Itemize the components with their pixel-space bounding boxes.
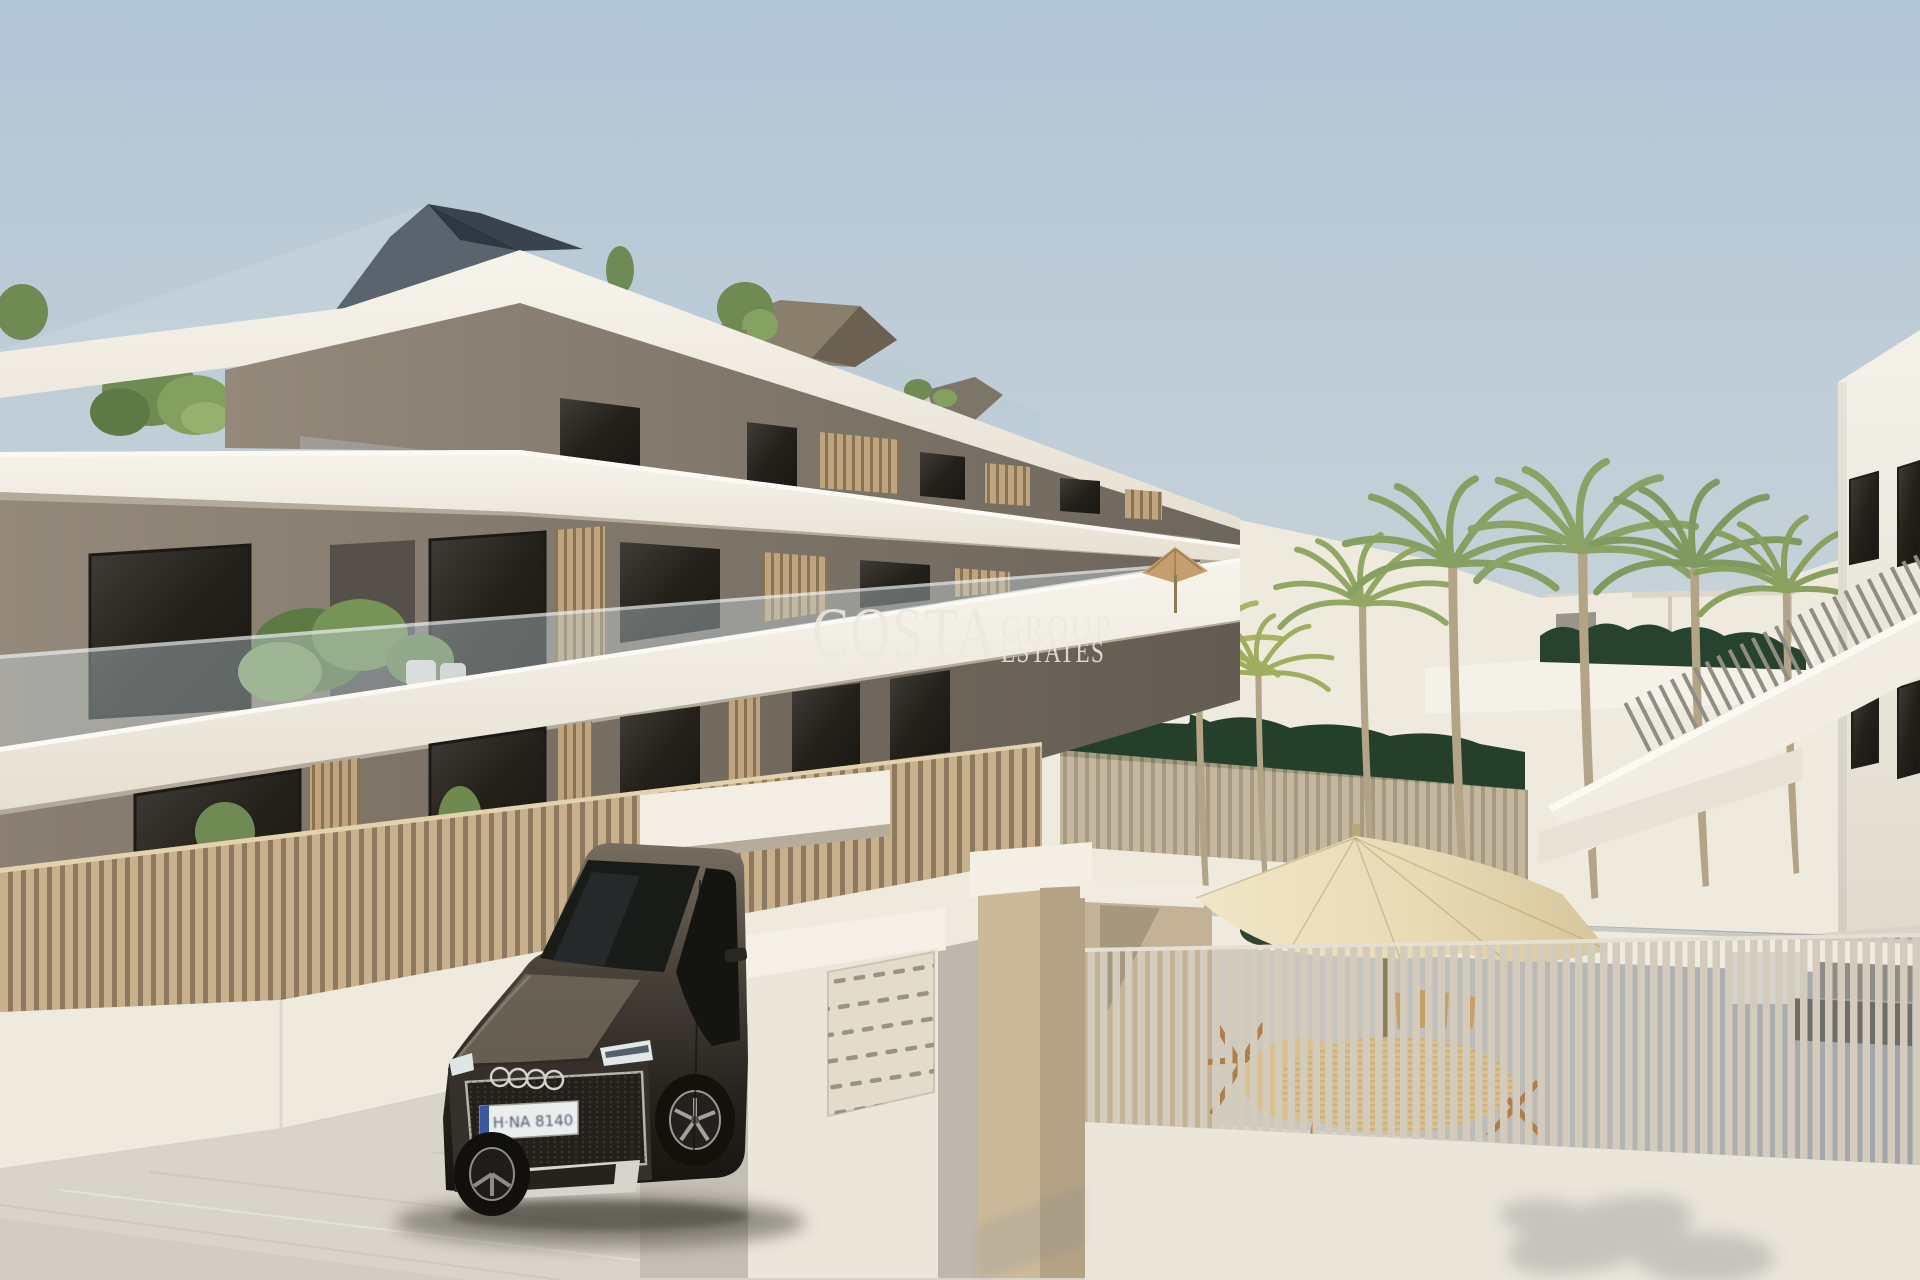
render-scene: H·NA 8140: [0, 0, 1920, 1280]
gate-alley: [938, 940, 978, 1278]
architectural-render: H·NA 8140: [0, 0, 1920, 1280]
license-plate-text: H·NA 8140: [493, 1111, 574, 1132]
car-wheel-left: [454, 1132, 530, 1216]
